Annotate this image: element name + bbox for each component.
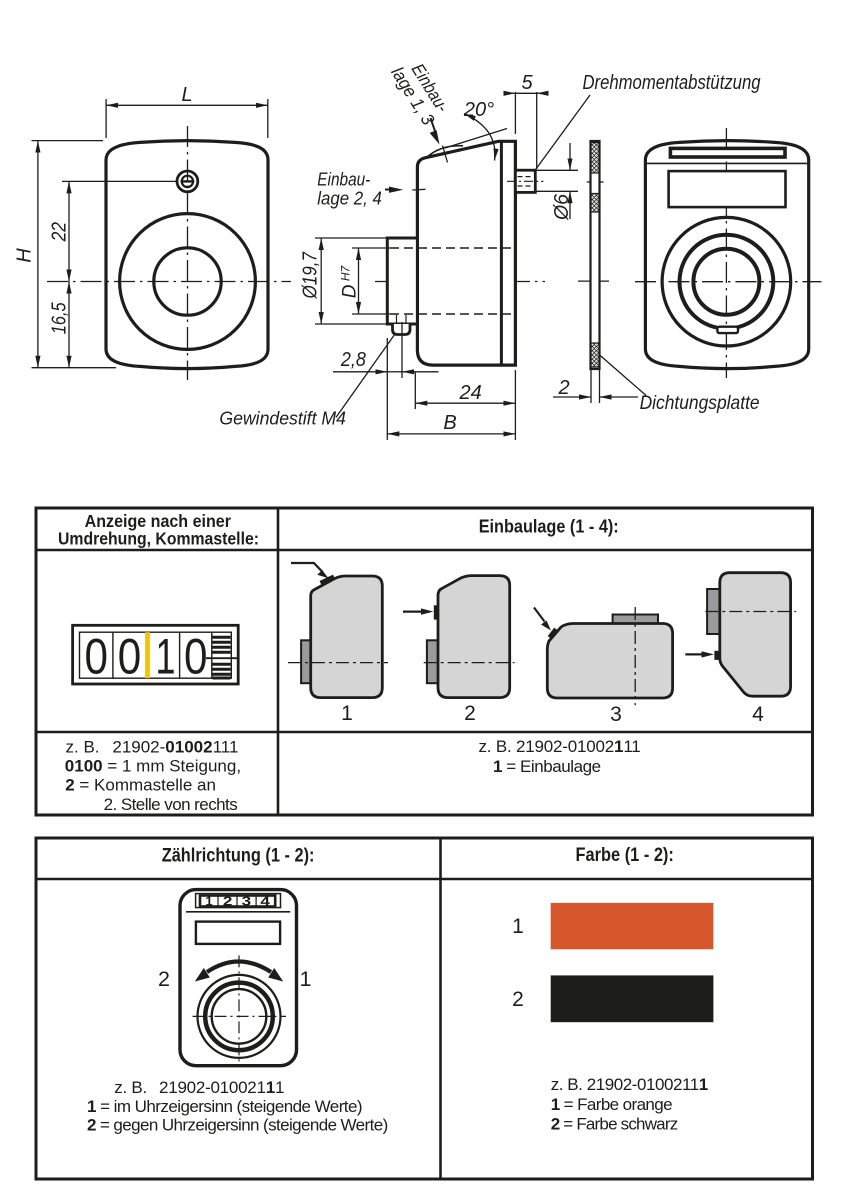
svg-text:16,5: 16,5 <box>49 302 71 335</box>
svg-text:Ø19,7: Ø19,7 <box>300 251 322 299</box>
svg-text:H: H <box>14 248 36 263</box>
svg-text:22: 22 <box>49 222 71 242</box>
svg-text:1: 1 <box>341 702 353 725</box>
svg-text:0100 = 1 mm Steigung,: 0100 = 1 mm Steigung, <box>65 757 241 776</box>
svg-text:1 = Farbe orange: 1 = Farbe orange <box>551 1095 672 1114</box>
svg-text:2: 2 <box>223 895 233 909</box>
svg-text:4: 4 <box>752 703 764 726</box>
svg-text:1: 1 <box>205 895 213 909</box>
svg-text:Einbau-: Einbau- <box>317 170 370 190</box>
svg-text:2. Stelle von rechts: 2. Stelle von rechts <box>104 795 238 814</box>
svg-text:Zählrichtung (1 - 2):: Zählrichtung (1 - 2): <box>162 845 315 867</box>
svg-text:L: L <box>181 84 192 106</box>
svg-text:z. B. 21902-01002111: z. B. 21902-01002111 <box>114 1078 284 1097</box>
svg-text:3: 3 <box>242 895 252 909</box>
svg-text:Drehmomentabstützung: Drehmomentabstützung <box>583 72 761 94</box>
svg-text:2: 2 <box>158 967 170 991</box>
svg-text:z. B. 21902-01002111: z. B. 21902-01002111 <box>551 1075 708 1094</box>
svg-text:lage 2, 4: lage 2, 4 <box>317 189 382 209</box>
svg-text:Farbe (1 - 2):: Farbe (1 - 2): <box>576 844 674 866</box>
svg-text:B: B <box>443 412 456 434</box>
svg-text:5: 5 <box>521 72 533 94</box>
svg-text:2,8: 2,8 <box>340 349 366 371</box>
svg-text:1 = im Uhrzeigersinn (steigend: 1 = im Uhrzeigersinn (steigende Werte) <box>87 1097 362 1116</box>
svg-text:0: 0 <box>184 629 208 685</box>
svg-text:20°: 20° <box>463 99 494 121</box>
svg-text:Umdrehung, Kommastelle:: Umdrehung, Kommastelle: <box>58 529 259 549</box>
svg-text:2 = Kommastelle an: 2 = Kommastelle an <box>65 776 216 795</box>
svg-text:2: 2 <box>464 702 476 725</box>
svg-text:24: 24 <box>458 382 481 404</box>
svg-text:Ø6: Ø6 <box>551 193 573 221</box>
svg-text:3: 3 <box>610 703 622 726</box>
svg-text:0: 0 <box>118 629 142 685</box>
svg-text:2 = Farbe schwarz: 2 = Farbe schwarz <box>551 1115 678 1134</box>
svg-text:z. B. 21902-01002111: z. B. 21902-01002111 <box>479 737 641 756</box>
svg-text:z. B. 21902-01002111: z. B. 21902-01002111 <box>66 738 239 757</box>
svg-text:1 = Einbaulage: 1 = Einbaulage <box>493 757 601 776</box>
svg-text:1: 1 <box>156 629 176 685</box>
svg-text:0: 0 <box>85 629 109 685</box>
svg-text:Dichtungsplatte: Dichtungsplatte <box>640 393 760 414</box>
svg-text:1: 1 <box>512 915 524 938</box>
svg-text:Einbaulage (1 - 4):: Einbaulage (1 - 4): <box>479 515 619 536</box>
svg-text:2 = gegen Uhrzeigersinn (steig: 2 = gegen Uhrzeigersinn (steigende Werte… <box>87 1116 388 1135</box>
svg-text:2: 2 <box>512 988 524 1011</box>
svg-text:4: 4 <box>260 895 270 909</box>
svg-text:2: 2 <box>557 377 569 399</box>
svg-text:Gewindestift M4: Gewindestift M4 <box>219 408 346 429</box>
svg-text:1: 1 <box>300 967 312 991</box>
